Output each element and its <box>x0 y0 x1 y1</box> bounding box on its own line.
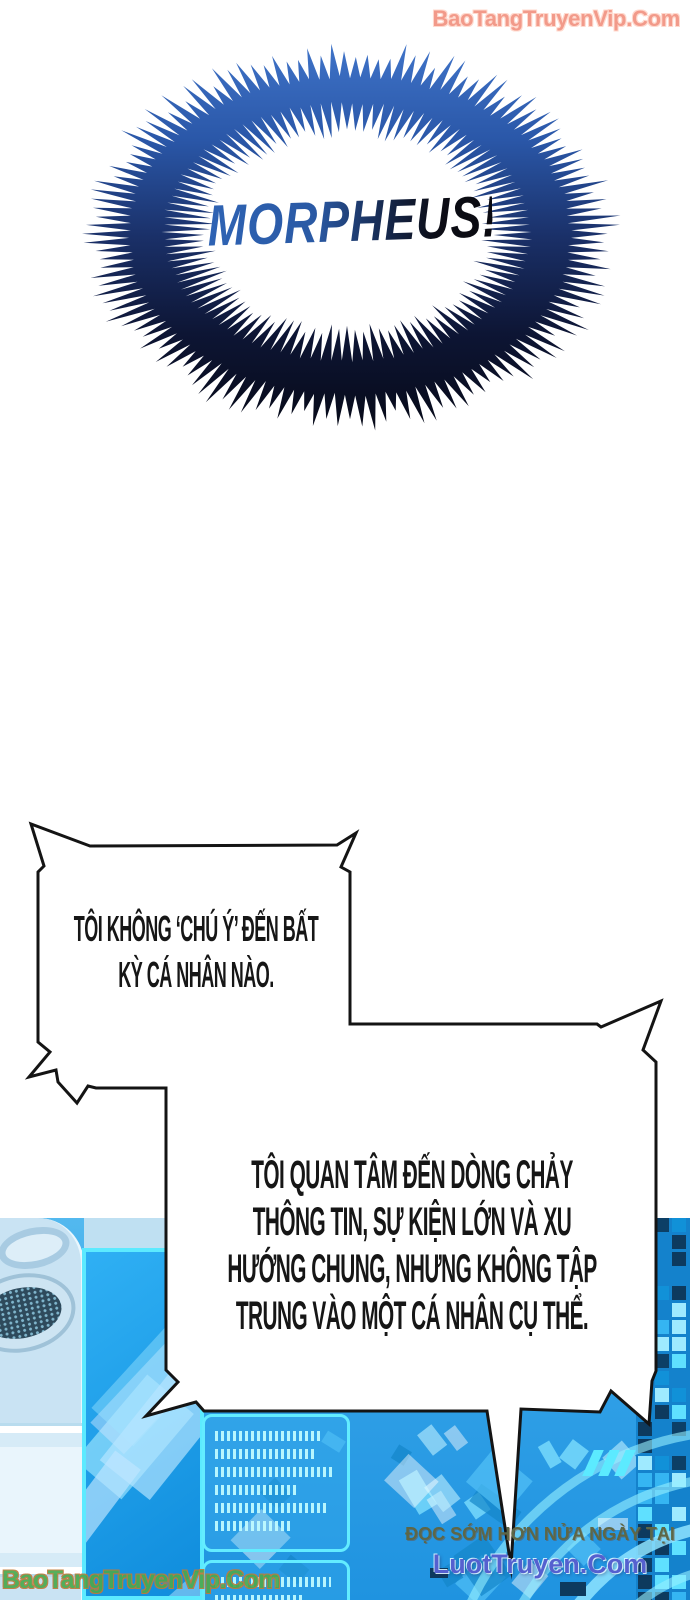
scream-text: MORPHEUS! <box>207 188 493 255</box>
speech-line: HƯỚNG CHUNG, NHƯNG KHÔNG TẬP <box>227 1246 596 1293</box>
speech-line: TÔI QUAN TÂM ĐẾN DÒNG CHẢY <box>251 1152 573 1199</box>
promo-text: ĐỌC SỚM HƠN NỬA NGÀY TẠI <box>390 1525 690 1543</box>
comic-page: MORPHEUS! TÔI KHÔNG ‘CHÚ Ý’ ĐẾN BẤT KỲ C… <box>0 0 690 1600</box>
speech-line: TRUNG VÀO MỘT CÁ NHÂN CỤ THỂ. <box>236 1293 588 1340</box>
speech-line: KỲ CÁ NHÂN NÀO. <box>118 952 274 998</box>
speech-text-1: TÔI KHÔNG ‘CHÚ Ý’ ĐẾN BẤT KỲ CÁ NHÂN NÀO… <box>118 906 274 998</box>
promo-site-link: LuotTruyen.Com <box>400 1551 680 1578</box>
speech-text-2: TÔI QUAN TÂM ĐẾN DÒNG CHẢY THÔNG TIN, SỰ… <box>286 1152 538 1340</box>
speech-line: THÔNG TIN, SỰ KIỆN LỚN VÀ XU <box>253 1199 572 1246</box>
watermark-top: BaoTangTruyenVip.Com <box>433 6 680 32</box>
watermark-bottom: BaoTangTruyenVip.Com <box>2 1566 280 1595</box>
speech-line: TÔI KHÔNG ‘CHÚ Ý’ ĐẾN BẤT <box>74 906 319 952</box>
